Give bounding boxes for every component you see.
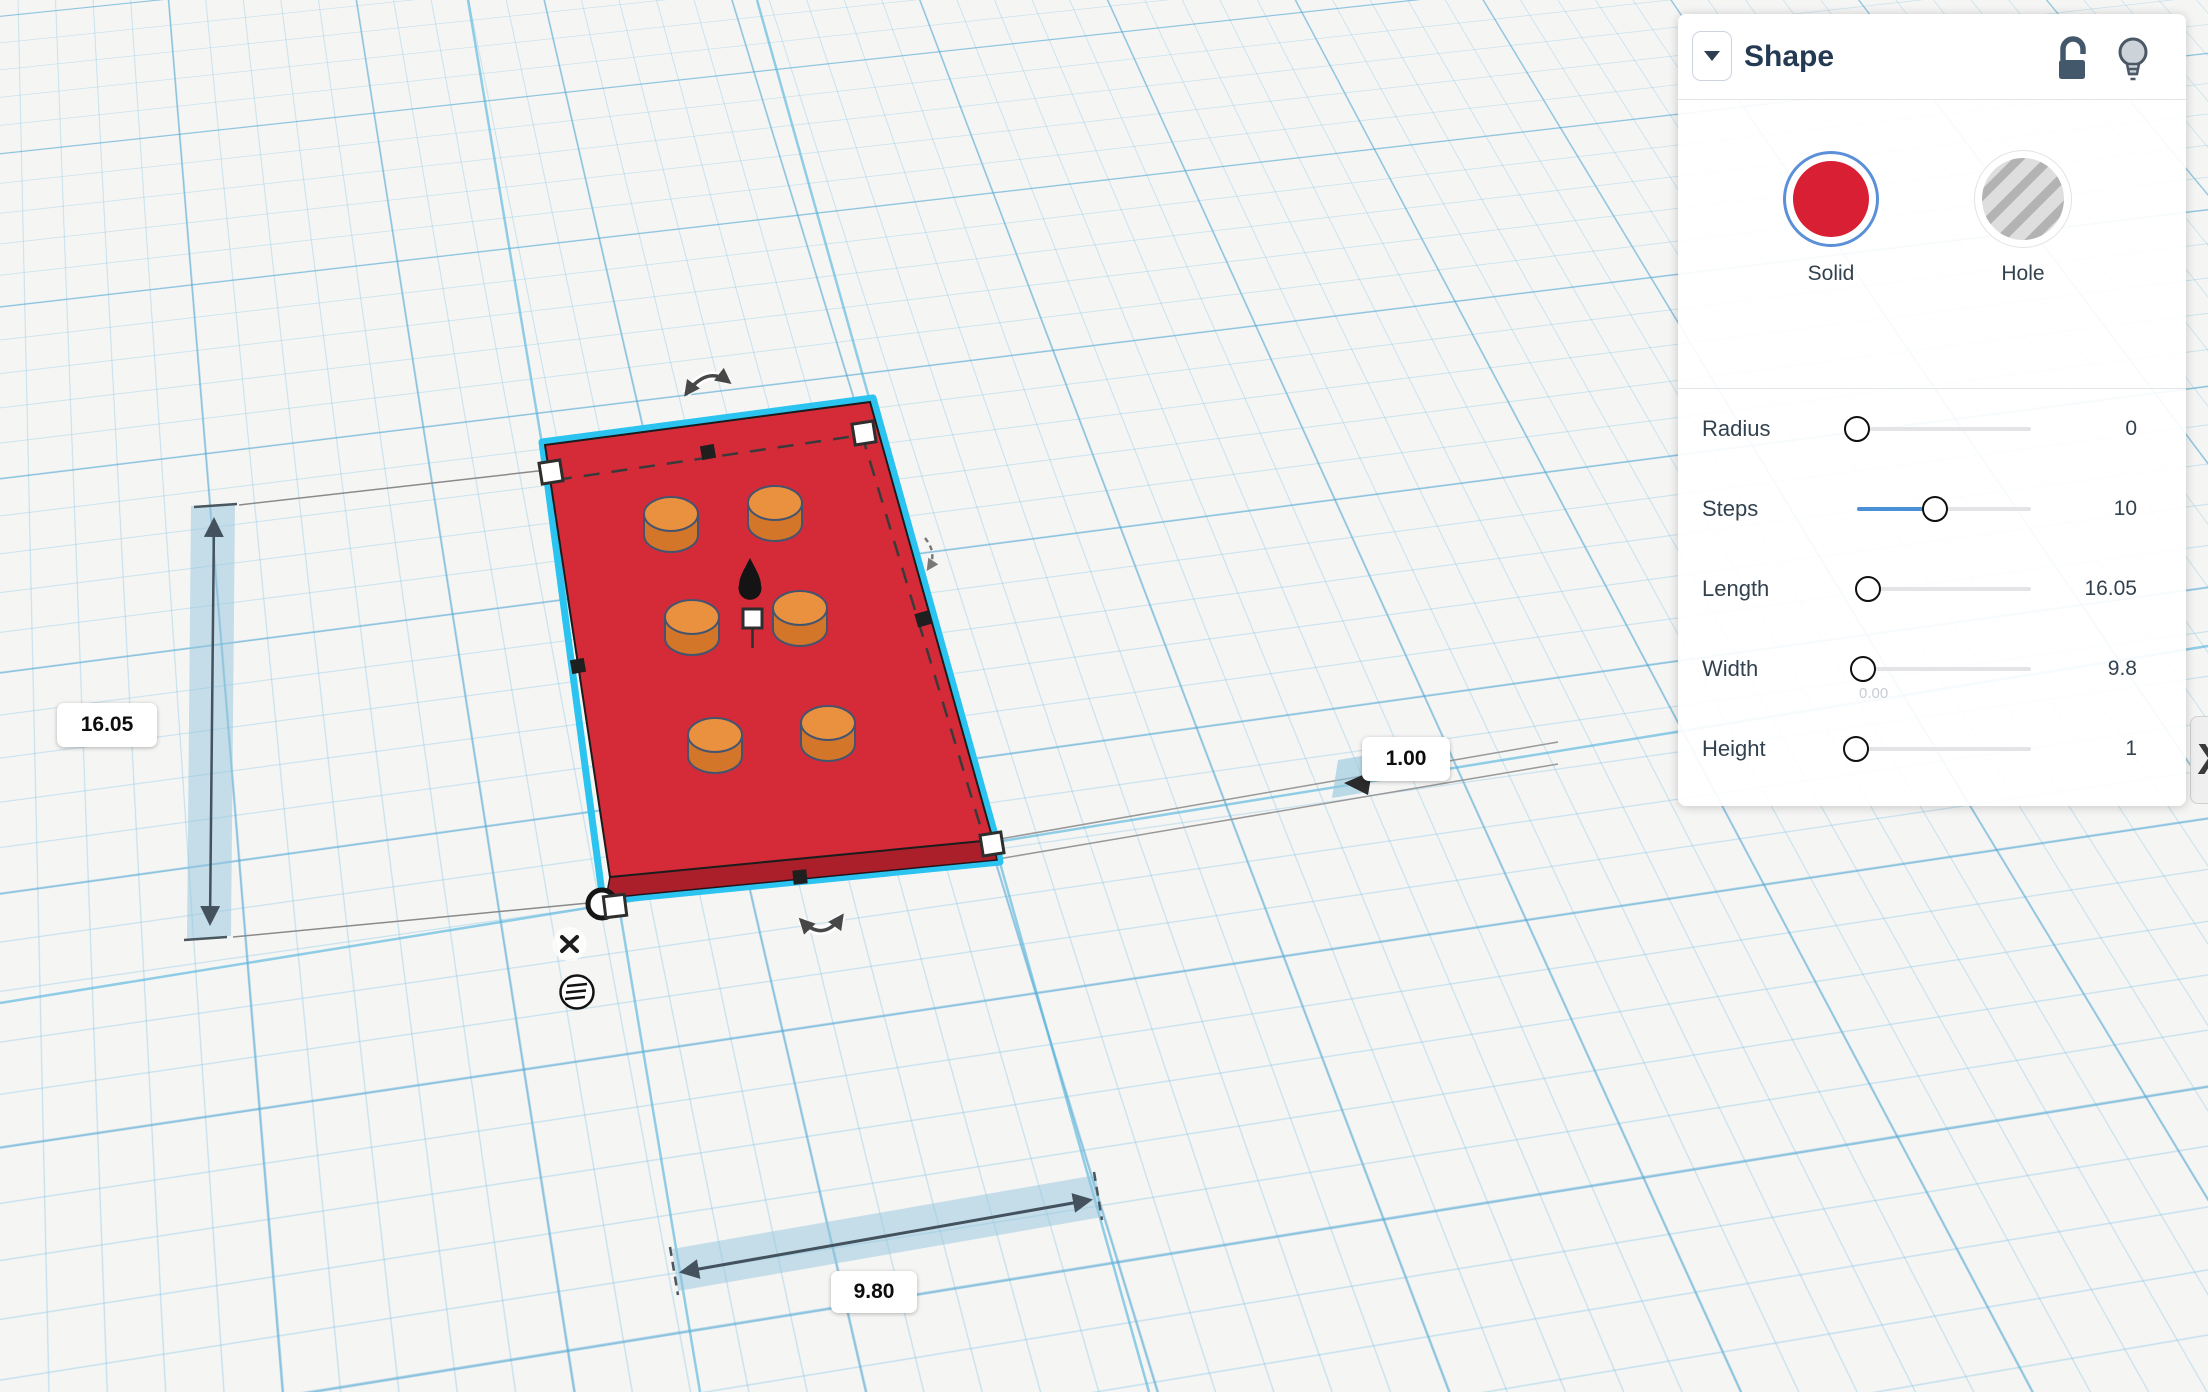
- width-slider-knob[interactable]: [1850, 656, 1876, 682]
- length-value: 16.05: [2084, 577, 2137, 601]
- length-slider-track[interactable]: [1857, 587, 2031, 591]
- shape-top-face: [545, 402, 993, 877]
- height-value: 1: [2125, 737, 2137, 761]
- ruler-menu-icon[interactable]: [561, 976, 594, 1009]
- unlock-icon[interactable]: [2056, 36, 2090, 89]
- shape-parameter-sliders: Radius 0 Steps 10 Length 16.05 Width 9.8…: [1678, 389, 2186, 789]
- length-ruler[interactable]: [184, 470, 599, 940]
- hole-swatch-label: Hole: [2001, 262, 2044, 286]
- width-ghost-value: 0.00: [1859, 685, 1888, 702]
- chevron-down-icon: [1704, 51, 1720, 61]
- solid-swatch[interactable]: Solid: [1783, 151, 1879, 286]
- radius-label: Radius: [1702, 416, 1770, 442]
- collapse-panel-button[interactable]: [1692, 31, 1732, 81]
- length-slider-knob[interactable]: [1855, 576, 1881, 602]
- radius-value: 0: [2125, 417, 2137, 441]
- width-dimension-label[interactable]: 9.80: [831, 1271, 917, 1313]
- height-ruler[interactable]: [994, 742, 1558, 859]
- radius-slider-track[interactable]: [1857, 427, 2031, 431]
- length-label: Length: [1702, 576, 1769, 602]
- ruler-anchor[interactable]: [588, 890, 627, 918]
- steps-value: 10: [2114, 497, 2137, 521]
- axis-badge[interactable]: X: [2190, 716, 2208, 804]
- rotate-handle-bottom-icon[interactable]: [801, 916, 842, 931]
- height-dimension-label[interactable]: 1.00: [1362, 737, 1450, 781]
- height-slider-knob[interactable]: [1843, 736, 1869, 762]
- width-label: Width: [1702, 656, 1758, 682]
- width-value: 9.8: [2108, 657, 2137, 681]
- ruler-close-icon[interactable]: [553, 927, 587, 961]
- hole-swatch[interactable]: Hole: [1975, 151, 2071, 286]
- radius-slider-knob[interactable]: [1844, 416, 1870, 442]
- rotate-handle-top-icon[interactable]: [686, 376, 729, 394]
- height-label: Height: [1702, 736, 1766, 762]
- width-slider-row: Width 9.8 0.00: [1678, 629, 2186, 709]
- lightbulb-icon[interactable]: [2116, 36, 2150, 89]
- hole-swatch-circle: [1975, 151, 2071, 247]
- steps-slider-knob[interactable]: [1922, 496, 1948, 522]
- solid-swatch-label: Solid: [1808, 262, 1855, 286]
- rotate-handle-right-icon[interactable]: [925, 538, 932, 569]
- height-slider-track[interactable]: [1857, 747, 2031, 751]
- height-slider-row: Height 1: [1678, 709, 2186, 789]
- shape-red-box[interactable]: [542, 398, 1000, 901]
- material-swatches: Solid Hole: [1678, 100, 2186, 390]
- panel-header: Shape: [1678, 14, 2186, 100]
- steps-slider-row: Steps 10: [1678, 469, 2186, 549]
- radius-slider-row: Radius 0: [1678, 389, 2186, 469]
- panel-title: Shape: [1744, 40, 1834, 74]
- steps-label: Steps: [1702, 496, 1758, 522]
- shape-inspector-panel: Shape So: [1678, 14, 2186, 806]
- solid-swatch-circle: [1783, 151, 1879, 247]
- length-slider-row: Length 16.05: [1678, 549, 2186, 629]
- length-dimension-label[interactable]: 16.05: [57, 703, 157, 747]
- width-slider-track[interactable]: [1857, 667, 2031, 671]
